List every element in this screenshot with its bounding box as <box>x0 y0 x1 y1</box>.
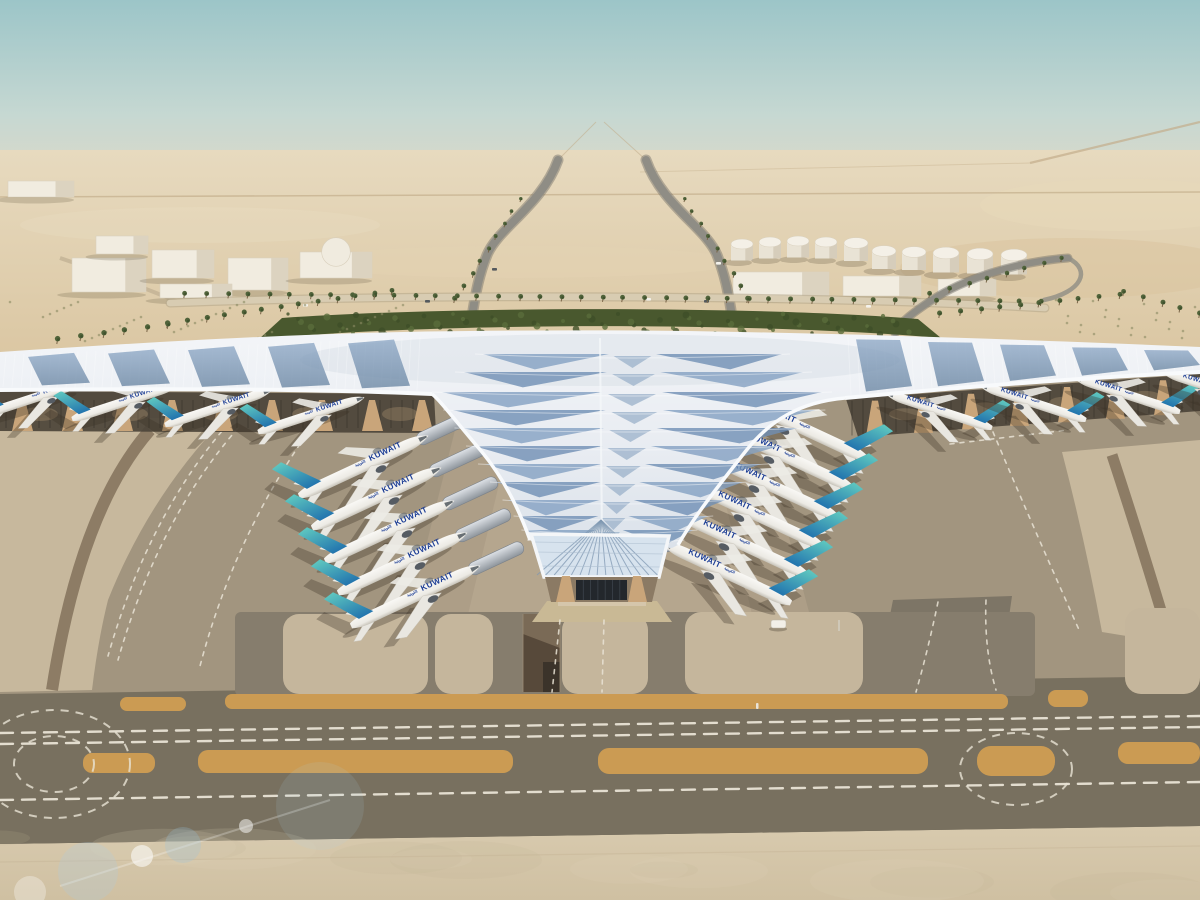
service-van <box>771 620 786 628</box>
shoulder-strip <box>977 746 1055 776</box>
shoulder-strip <box>198 750 513 773</box>
sunken-service-road <box>523 614 560 692</box>
scene-svg: KUWAITالكويتيةKUWAITالكويتيةKUWAITالكويت… <box>0 0 1200 900</box>
stand-pad <box>562 614 648 694</box>
shoulder-strip <box>120 697 186 711</box>
shoulder-strip <box>1118 742 1200 764</box>
shoulder-strip <box>225 694 1008 709</box>
shoulder-strip <box>1048 690 1088 707</box>
airport-aerial-rendering: KUWAITالكويتيةKUWAITالكويتيةKUWAITالكويت… <box>0 0 1200 900</box>
stand-pad <box>435 614 493 694</box>
shoulder-strip <box>598 748 928 774</box>
pole <box>838 620 840 631</box>
car <box>866 305 871 308</box>
car <box>425 300 430 303</box>
stand-pad <box>1125 608 1200 694</box>
car <box>716 262 721 265</box>
person <box>756 703 759 709</box>
car <box>492 268 497 271</box>
